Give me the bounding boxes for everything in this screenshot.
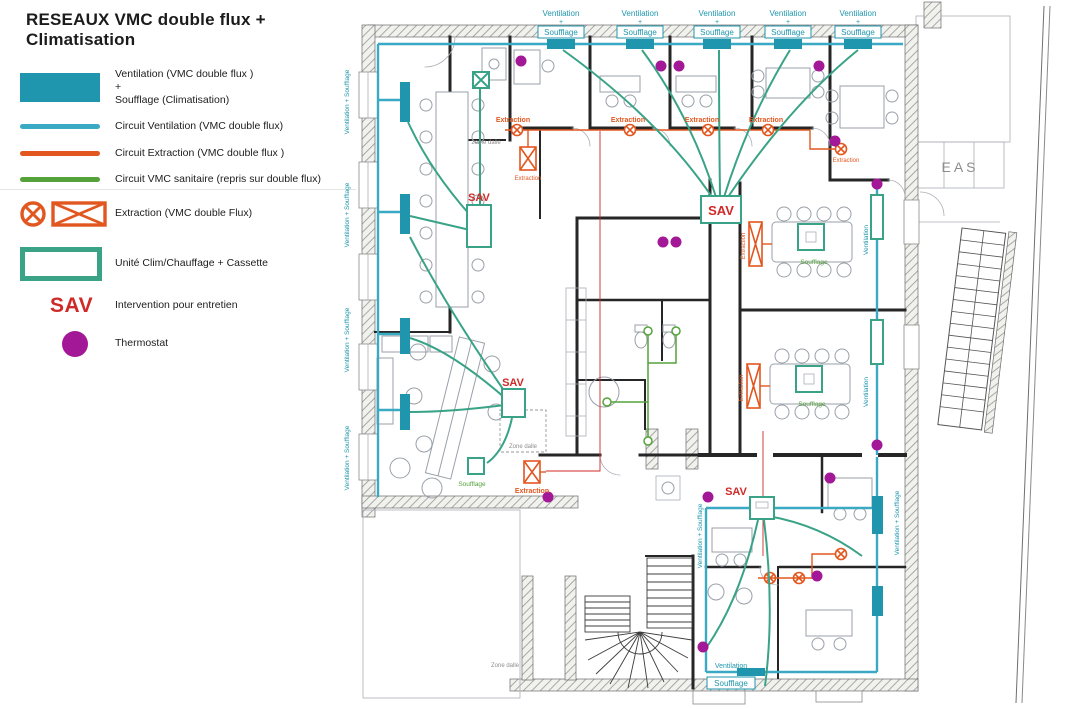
- extraction-label: Extraction: [515, 488, 549, 495]
- extraction-grille-icons: [512, 125, 847, 584]
- legend-item-ventilation-soufflage: Ventilation (VMC double flux ) + Souffla…: [20, 68, 355, 107]
- sanitaire-circuit: [603, 327, 680, 445]
- soufflage-cassette-label: Soufflage: [458, 481, 486, 488]
- ventilation-label-rotated: Ventilation: [863, 225, 870, 255]
- sav-label: SAV: [725, 486, 747, 498]
- vent-souf-label: Ventilation + Soufflage: [835, 9, 881, 38]
- svg-text:Ventilation: Ventilation: [770, 9, 807, 18]
- legend-label: Intervention pour entretien: [115, 299, 238, 312]
- slab-note: Zone dalle: [509, 444, 538, 450]
- extraction-label: Extraction: [611, 117, 645, 124]
- sav-icon: SAV: [50, 294, 93, 318]
- legend-item-circuit-ventilation: Circuit Ventilation (VMC double flux): [20, 120, 355, 133]
- legend-item-unit-clim: Unité Clim/Chauffage + Cassette: [20, 247, 355, 281]
- extraction-label: Extraction: [833, 158, 860, 164]
- slab-note: Zone dalle: [491, 663, 520, 669]
- svg-text:+: +: [786, 19, 790, 26]
- sav-label: SAV: [708, 203, 734, 218]
- svg-text:Soufflage: Soufflage: [700, 28, 734, 37]
- furniture: [377, 48, 898, 650]
- legend-label: Extraction (VMC double Flux): [115, 207, 252, 220]
- vent-souf-label: Ventilation + Soufflage: [617, 9, 663, 38]
- ventilation-label: Ventilation: [715, 663, 747, 670]
- circuit-extraction-line: [20, 151, 100, 156]
- svg-text:Ventilation: Ventilation: [622, 9, 659, 18]
- unit-clim-icon: [20, 247, 102, 281]
- legend-label: Unité Clim/Chauffage + Cassette: [115, 257, 268, 270]
- vent-souf-label-rotated: Ventilation + Soufflage: [894, 490, 901, 555]
- svg-text:+: +: [856, 19, 860, 26]
- svg-text:Ventilation: Ventilation: [699, 9, 736, 18]
- sav-label: SAV: [468, 192, 490, 204]
- extraction-label-rotated: Extraction: [741, 233, 747, 260]
- svg-text:+: +: [638, 19, 642, 26]
- exterior-staircase: [938, 226, 1017, 433]
- eas-label: EAS: [941, 159, 978, 175]
- svg-text:Soufflage: Soufflage: [771, 28, 805, 37]
- extraction-symbols-icon: [20, 199, 112, 229]
- legend-item-extraction-symbols: Extraction (VMC double Flux): [20, 199, 355, 229]
- vent-souf-label-rotated: Ventilation + Soufflage: [344, 425, 351, 490]
- legend: RESEAUX VMC double flux + Climatisation …: [20, 10, 355, 370]
- svg-text:+: +: [715, 19, 719, 26]
- page-title: RESEAUX VMC double flux + Climatisation: [26, 10, 355, 50]
- legend-label: Soufflage (Climatisation): [115, 94, 253, 107]
- legend-label: Circuit VMC sanitaire (repris sur double…: [115, 173, 321, 186]
- main-staircase: [585, 558, 692, 688]
- wc-fixtures: [589, 325, 680, 500]
- ventilation-soufflage-swatch: [20, 73, 100, 102]
- svg-text:Ventilation: Ventilation: [840, 9, 877, 18]
- vent-souf-label: Ventilation + Soufflage: [538, 9, 584, 38]
- legend-item-sav: SAV Intervention pour entretien: [20, 294, 355, 318]
- legend-item-circuit-sanitaire: Circuit VMC sanitaire (repris sur double…: [20, 173, 355, 186]
- vent-souf-label-rotated: Ventilation + Soufflage: [697, 503, 704, 568]
- svg-text:+: +: [559, 19, 563, 26]
- extraction-label: Extraction: [749, 117, 783, 124]
- legend-label: Ventilation (VMC double flux ): [115, 68, 253, 81]
- legend-item-circuit-extraction: Circuit Extraction (VMC double flux ): [20, 147, 355, 160]
- site-boundary: [1016, 6, 1050, 703]
- soufflage-label: Soufflage: [714, 679, 748, 688]
- extraction-label: Extraction: [685, 117, 719, 124]
- legend-label: Circuit Extraction (VMC double flux ): [115, 147, 284, 160]
- vent-souf-label: Ventilation + Soufflage: [765, 9, 811, 38]
- eas-annex: EAS: [916, 16, 1010, 222]
- svg-text:Soufflage: Soufflage: [544, 28, 578, 37]
- legend-label: Thermostat: [115, 337, 168, 350]
- circuit-ventilation-line: [20, 124, 100, 129]
- extraction-label-rotated: Extraction: [739, 375, 745, 402]
- svg-text:Soufflage: Soufflage: [623, 28, 657, 37]
- slab-note: 2eme dalle: [471, 140, 501, 146]
- sav-label: SAV: [502, 377, 524, 389]
- thermostat-icon: [62, 331, 88, 357]
- ventilation-label-rotated: Ventilation: [863, 377, 870, 407]
- circuit-sanitaire-line: [20, 177, 100, 182]
- svg-text:Soufflage: Soufflage: [841, 28, 875, 37]
- extraction-label: Extraction: [515, 176, 542, 182]
- extraction-label: Extraction: [496, 117, 530, 124]
- legend-label: Circuit Ventilation (VMC double flux): [115, 120, 283, 133]
- legend-item-thermostat: Thermostat: [20, 331, 355, 357]
- floorplan-document: { "title": "RESEAUX VMC double flux + Cl…: [0, 0, 1080, 709]
- vent-souf-label: Ventilation + Soufflage: [694, 9, 740, 38]
- ceiling-extract-icon: [473, 72, 489, 88]
- svg-text:Ventilation: Ventilation: [543, 9, 580, 18]
- soufflage-cassette-label: Soufflage: [798, 401, 826, 408]
- legend-label: +: [115, 81, 253, 94]
- soufflage-cassette-label: Soufflage: [800, 259, 828, 266]
